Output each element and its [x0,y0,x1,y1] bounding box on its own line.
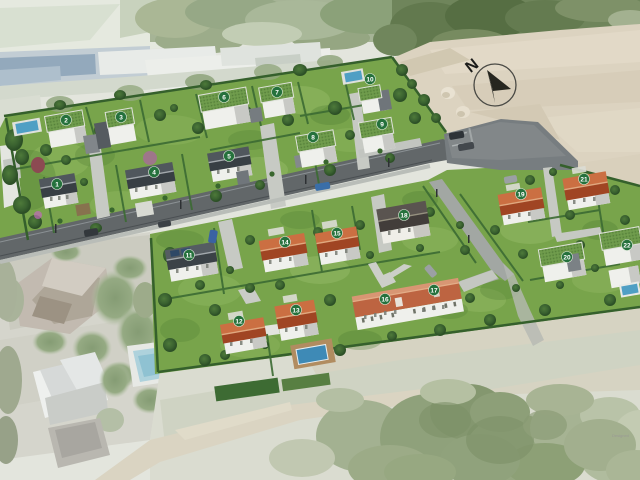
svg-text:19: 19 [517,191,525,198]
svg-text:4: 4 [152,169,156,176]
svg-text:11: 11 [186,252,193,259]
svg-text:Designed: Designed [612,433,629,438]
svg-text:6: 6 [222,94,226,101]
svg-text:20: 20 [563,254,571,261]
svg-text:1: 1 [55,181,59,188]
svg-text:5: 5 [227,153,231,160]
svg-text:2: 2 [64,117,68,124]
svg-text:9: 9 [380,121,384,128]
svg-text:22: 22 [623,242,631,249]
svg-text:14: 14 [281,239,289,246]
svg-text:16: 16 [381,296,389,303]
svg-text:12: 12 [235,318,243,325]
svg-text:18: 18 [400,212,408,219]
svg-text:10: 10 [366,76,374,83]
svg-text:7: 7 [275,89,279,96]
svg-text:13: 13 [292,307,300,314]
svg-text:8: 8 [311,134,315,141]
svg-text:17: 17 [430,287,438,294]
svg-text:15: 15 [333,230,341,237]
svg-text:3: 3 [119,114,123,121]
svg-text:21: 21 [580,176,588,183]
